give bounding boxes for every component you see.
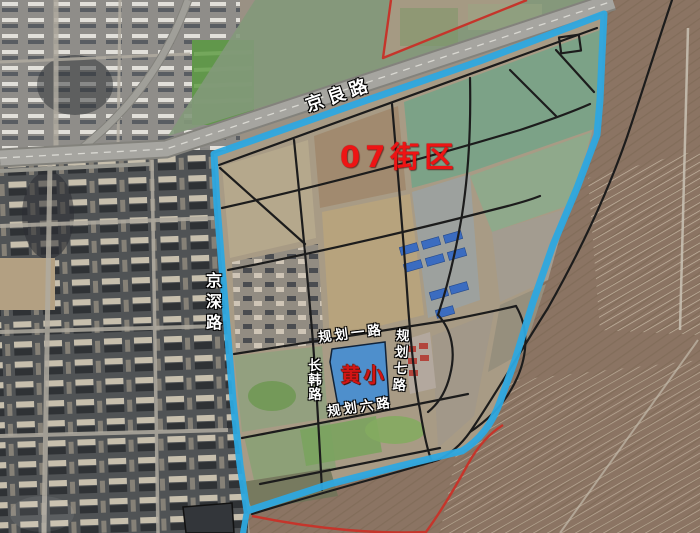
watermark (10, 496, 74, 532)
planning-map: 京良路 07街区 京深路 规划一路 规划七路 长韩路 规划六路 黄小 (0, 0, 700, 533)
satellite-map (0, 0, 700, 533)
school-site (330, 342, 389, 406)
